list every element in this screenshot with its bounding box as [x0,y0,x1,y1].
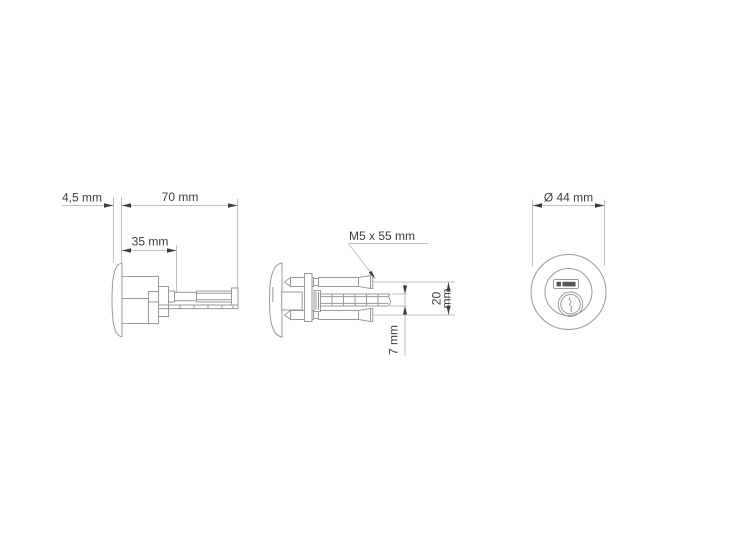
arrowhead [167,248,177,252]
break-line [388,294,390,306]
dim-face-diameter-label: Ø 44 mm [544,191,593,205]
dim-screw-spacing-unit: mm [440,289,454,309]
side-view-object [112,263,238,337]
front-view-object [531,255,606,330]
arrowhead [595,203,605,207]
side-view: 4,5 mm 70 mm 35 mm [62,190,238,337]
arrowhead [533,203,543,207]
screw-spec-label: M5 x 55 mm [349,229,415,243]
face-plate-profile [112,263,122,337]
arrowhead [228,203,238,207]
keyhole-icon [558,292,582,316]
face-plate-profile [270,263,283,337]
spindle-end-flange [232,288,239,305]
mounting-screw-top [285,276,373,289]
threaded-tailpiece [321,294,391,306]
spindle-collar [169,291,175,302]
technical-drawing-canvas: 4,5 mm 70 mm 35 mm [0,0,750,543]
brand-logo-icon [554,280,579,289]
rear-flange [314,291,321,312]
cylinder-housing [282,292,303,310]
top-view-dimensions: M5 x 55 mm 20 mm 7 mm [349,229,456,356]
arrowhead [403,286,407,295]
top-view: M5 x 55 mm 20 mm 7 mm [270,229,456,356]
cylinder-body [122,277,159,324]
rear-step-block [159,287,169,317]
front-view: Ø 44 mm [531,191,606,330]
arrowhead [122,248,132,252]
threaded-spindle [197,291,232,302]
arrowhead [104,203,114,207]
dim-spindle-diameter-label: 7 mm [387,325,401,355]
key-blade [159,305,239,309]
keyway-profile [569,297,572,312]
lock-cylinder-drawing: 4,5 mm 70 mm 35 mm [0,0,750,543]
dim-body-length-label: 35 mm [132,235,169,249]
dim-plate-thickness-label: 4,5 mm [62,191,102,205]
arrowhead [122,203,132,207]
mounting-plate [305,274,313,322]
arrowhead [403,306,407,315]
spindle-connector [175,292,197,300]
dim-overall-length-label: 70 mm [162,190,199,204]
